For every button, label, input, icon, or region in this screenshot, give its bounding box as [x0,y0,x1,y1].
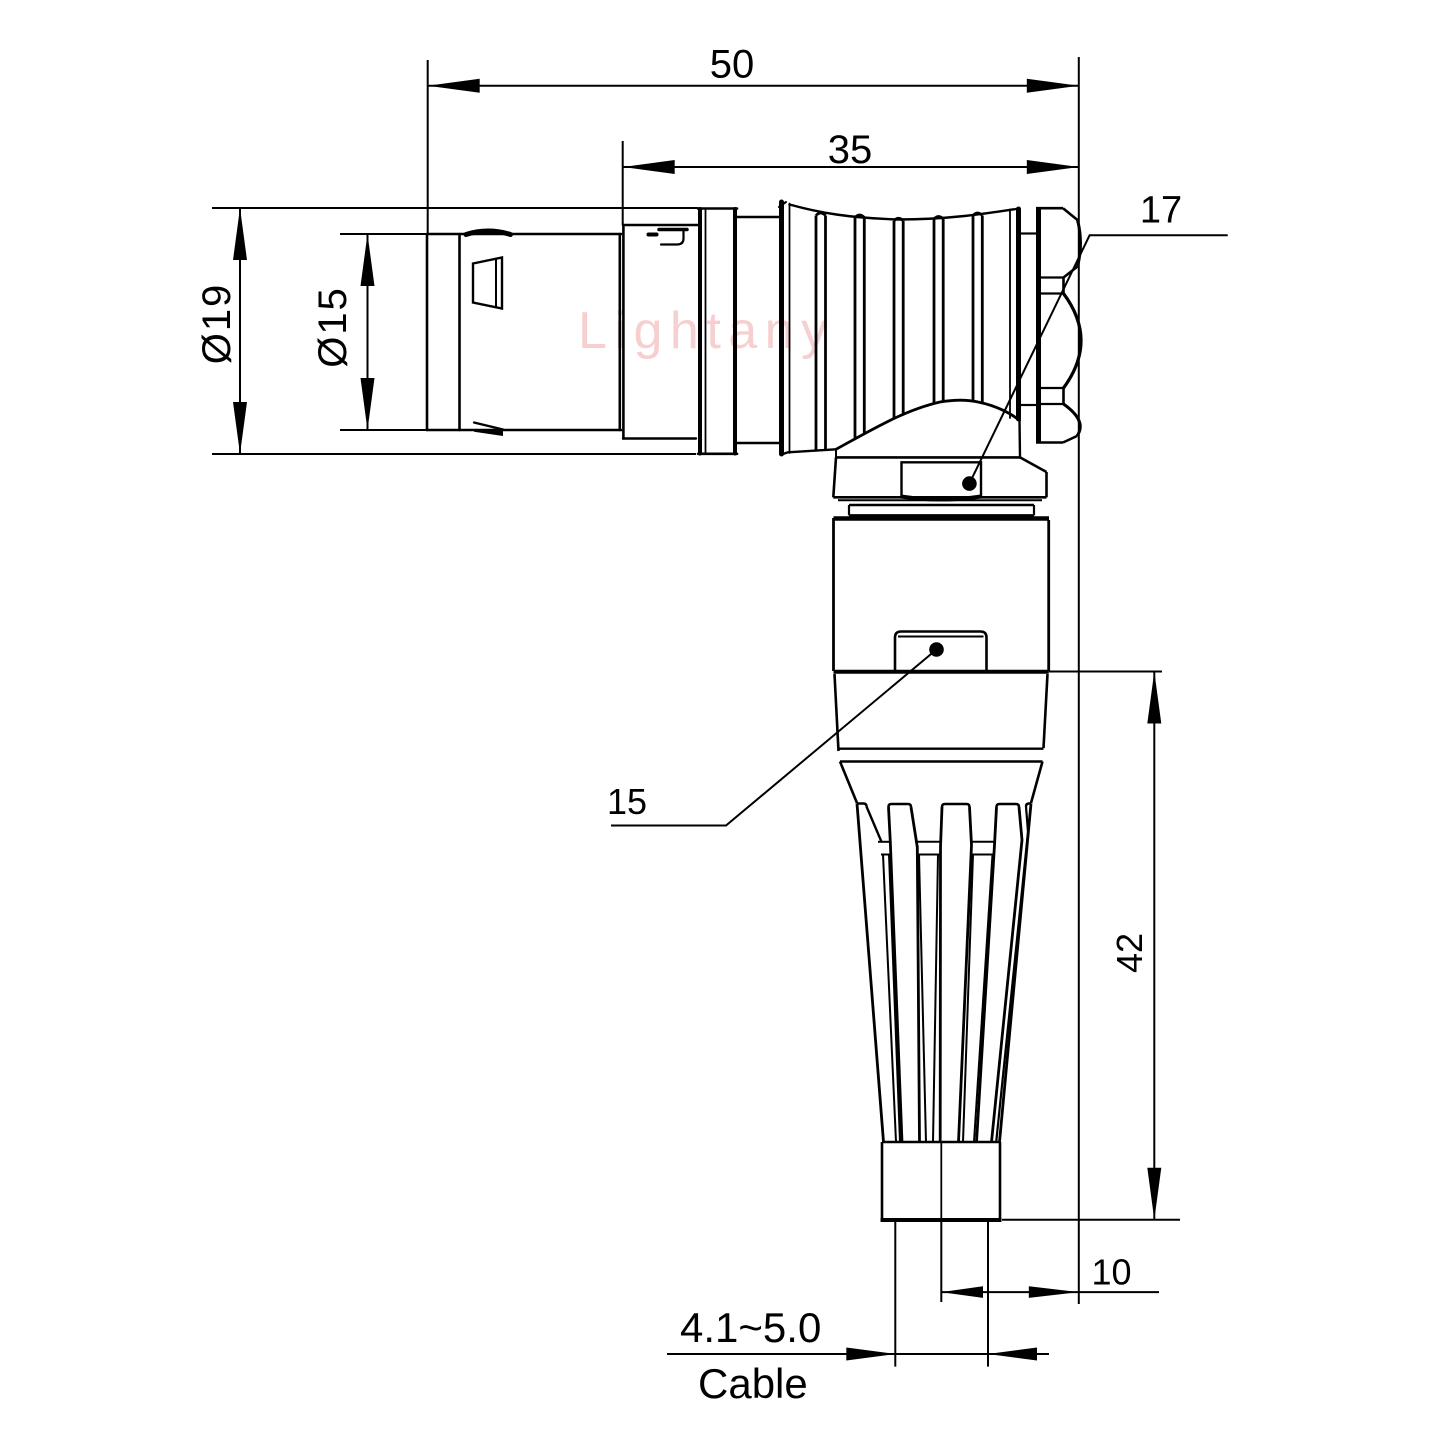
svg-text:10: 10 [1091,1252,1131,1293]
svg-text:17: 17 [1140,190,1182,232]
svg-text:Ø19: Ø19 [195,283,239,365]
svg-text:4.1~5.0: 4.1~5.0 [680,1304,821,1351]
svg-text:42: 42 [1109,933,1150,973]
svg-text:15: 15 [607,781,647,822]
svg-text:Cable: Cable [698,1360,808,1407]
svg-text:50: 50 [710,43,755,87]
svg-text:35: 35 [828,128,873,172]
svg-text:Ø15: Ø15 [311,286,355,368]
